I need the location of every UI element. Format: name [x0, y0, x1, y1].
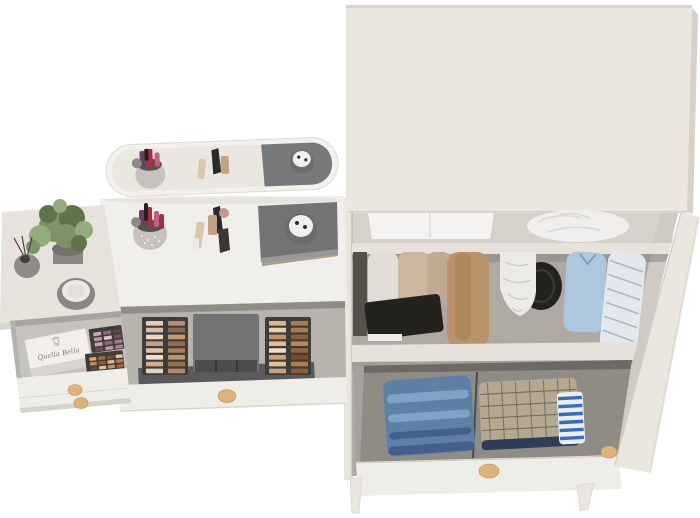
- makeup-swatch: [269, 341, 286, 346]
- makeup-swatch: [269, 328, 286, 333]
- lipstick-dark-red: [159, 214, 164, 229]
- makeup-swatch: [168, 348, 185, 353]
- cosmetic-bottle-tan: [208, 215, 217, 235]
- lipstick-pink: [154, 211, 159, 227]
- refl-bottle-tan: [221, 156, 230, 174]
- makeup-swatch: [269, 369, 286, 374]
- makeup-swatch: [168, 328, 185, 333]
- eyeshadow-palette-mauve: [88, 325, 124, 353]
- round-jar-box: [57, 278, 95, 310]
- makeup-swatch: [168, 321, 185, 326]
- side-drawer-knob-top: [68, 385, 82, 396]
- cream-jar-lid: [289, 215, 313, 237]
- makeup-swatch: [291, 341, 308, 346]
- makeup-swatch: [291, 335, 308, 340]
- blush-pot: [219, 208, 229, 218]
- makeup-swatch: [146, 321, 163, 326]
- makeup-swatch: [146, 362, 163, 367]
- makeup-swatch: [168, 362, 185, 367]
- makeup-swatch: [168, 369, 185, 374]
- makeup-swatch: [146, 348, 163, 353]
- makeup-swatch: [146, 328, 163, 333]
- jar-lid-dot-2: [303, 225, 307, 229]
- makeup-swatch: [99, 366, 106, 370]
- makeup-swatch: [269, 335, 286, 340]
- jar-lid-dot: [295, 221, 299, 225]
- roll-gray: [131, 217, 141, 227]
- makeup-swatch: [168, 341, 185, 346]
- vanity-drawer-open: [112, 301, 346, 389]
- vase-opening: [20, 255, 30, 263]
- makeup-swatch: [98, 361, 105, 365]
- makeup-swatch: [90, 362, 97, 366]
- gray-storage-box: [258, 202, 338, 266]
- brush-black: [144, 203, 148, 221]
- wardrobe-drawer-knob: [479, 464, 499, 478]
- kit-compartment-tray: [195, 360, 257, 372]
- vanity-drawer-knob: [218, 390, 236, 403]
- wardrobe: [344, 5, 700, 513]
- makeup-swatch: [108, 365, 115, 369]
- hanging-shirt-blue: [563, 251, 607, 333]
- product-render-scene: Quella Bella: [0, 0, 700, 518]
- makeup-swatch: [291, 348, 308, 353]
- vanity-table: [100, 137, 349, 412]
- makeup-swatch: [146, 355, 163, 360]
- makeup-swatch: [269, 321, 286, 326]
- white-bracket: [368, 334, 402, 341]
- side-drawer-knob-bottom: [74, 398, 88, 409]
- cosmetic-boot-dark: [218, 228, 230, 253]
- camel-sleeve-fold: [455, 252, 471, 340]
- round-box-lid-inner: [67, 284, 85, 298]
- furniture-illustration: Quella Bella: [0, 0, 700, 518]
- folded-striped-shirt: [557, 391, 586, 444]
- makeup-swatch: [291, 328, 308, 333]
- wardrobe-open-flap-door: [346, 8, 692, 212]
- makeup-swatch: [269, 362, 286, 367]
- makeup-swatch: [291, 355, 308, 360]
- makeup-swatch: [291, 369, 308, 374]
- makeup-swatch: [269, 355, 286, 360]
- makeup-swatch: [146, 335, 163, 340]
- wardrobe-drawer-open: [354, 360, 632, 468]
- blue-shirt-body: [563, 251, 607, 333]
- folded-jeans: [383, 375, 476, 457]
- makeup-swatch: [168, 335, 185, 340]
- wardrobe-mid-shelf: [352, 342, 638, 362]
- makeup-swatch: [168, 355, 185, 360]
- makeup-swatch: [107, 355, 114, 359]
- makeup-kit: [138, 314, 315, 389]
- hanging-garment-dark: [353, 252, 367, 336]
- makeup-swatch: [98, 356, 105, 360]
- makeup-swatch: [116, 354, 123, 358]
- makeup-swatch: [291, 362, 308, 367]
- makeup-swatch: [89, 357, 96, 361]
- makeup-swatch: [146, 341, 163, 346]
- makeup-swatch: [116, 359, 123, 363]
- makeup-swatch: [117, 364, 124, 368]
- makeup-swatch: [90, 366, 97, 370]
- makeup-swatch: [107, 360, 114, 364]
- door-knob: [601, 446, 617, 458]
- makeup-swatch: [146, 369, 163, 374]
- refl-brush-pink: [154, 152, 160, 166]
- cosmetic-tube-white: [192, 238, 199, 252]
- makeup-swatch: [291, 321, 308, 326]
- mirror-base-shadow: [104, 196, 340, 204]
- makeup-swatch: [269, 348, 286, 353]
- vanity-mirror: [105, 137, 339, 198]
